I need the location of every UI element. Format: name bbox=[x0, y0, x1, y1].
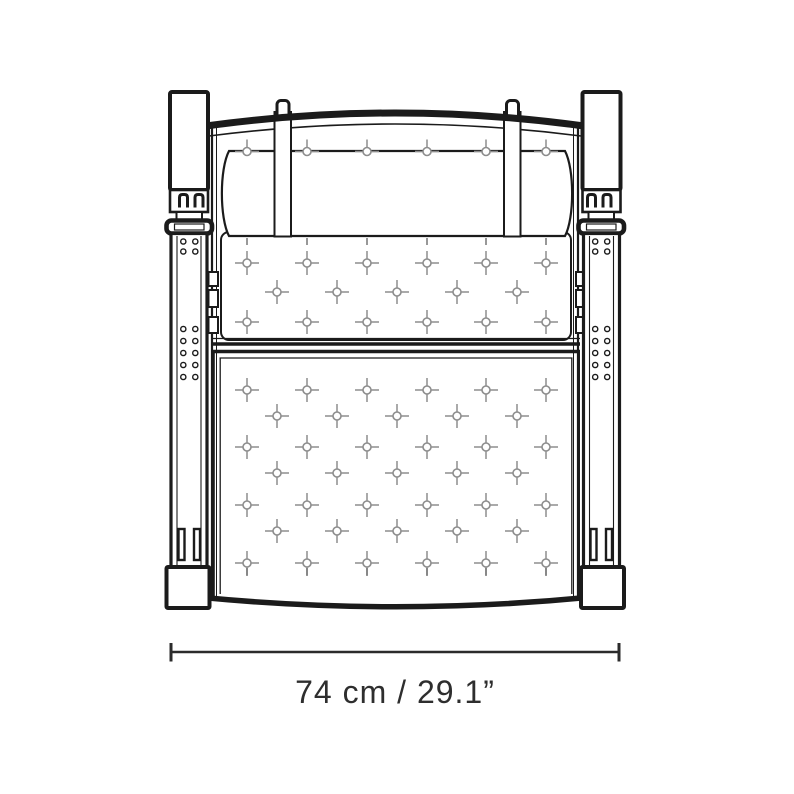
leather-strap bbox=[171, 234, 207, 568]
back-cushion bbox=[221, 232, 571, 340]
left-post-assembly bbox=[167, 92, 213, 608]
seat-cushion bbox=[212, 350, 580, 599]
post-body bbox=[170, 92, 208, 190]
belt-buckle bbox=[167, 221, 213, 234]
bottom-rail bbox=[203, 598, 587, 607]
seat-seam-ticks bbox=[247, 568, 546, 576]
dimension-label: 74 cm / 29.1” bbox=[295, 674, 495, 710]
seat-tufting-buttons bbox=[235, 378, 558, 575]
drawing-canvas: 74 cm / 29.1” bbox=[0, 0, 794, 794]
strap-bottom-slot bbox=[179, 529, 185, 560]
back-cushion-face bbox=[221, 232, 571, 340]
headrest-strap-left bbox=[275, 112, 292, 237]
headrest-strap-right bbox=[504, 112, 521, 237]
right-post-assembly bbox=[579, 92, 625, 608]
foot-block bbox=[167, 567, 210, 608]
dimension-indicator bbox=[171, 643, 619, 662]
strap-bottom-slot bbox=[194, 529, 200, 560]
top-rail-inner-line bbox=[209, 124, 581, 136]
chair-technical-drawing: 74 cm / 29.1” bbox=[0, 0, 794, 794]
